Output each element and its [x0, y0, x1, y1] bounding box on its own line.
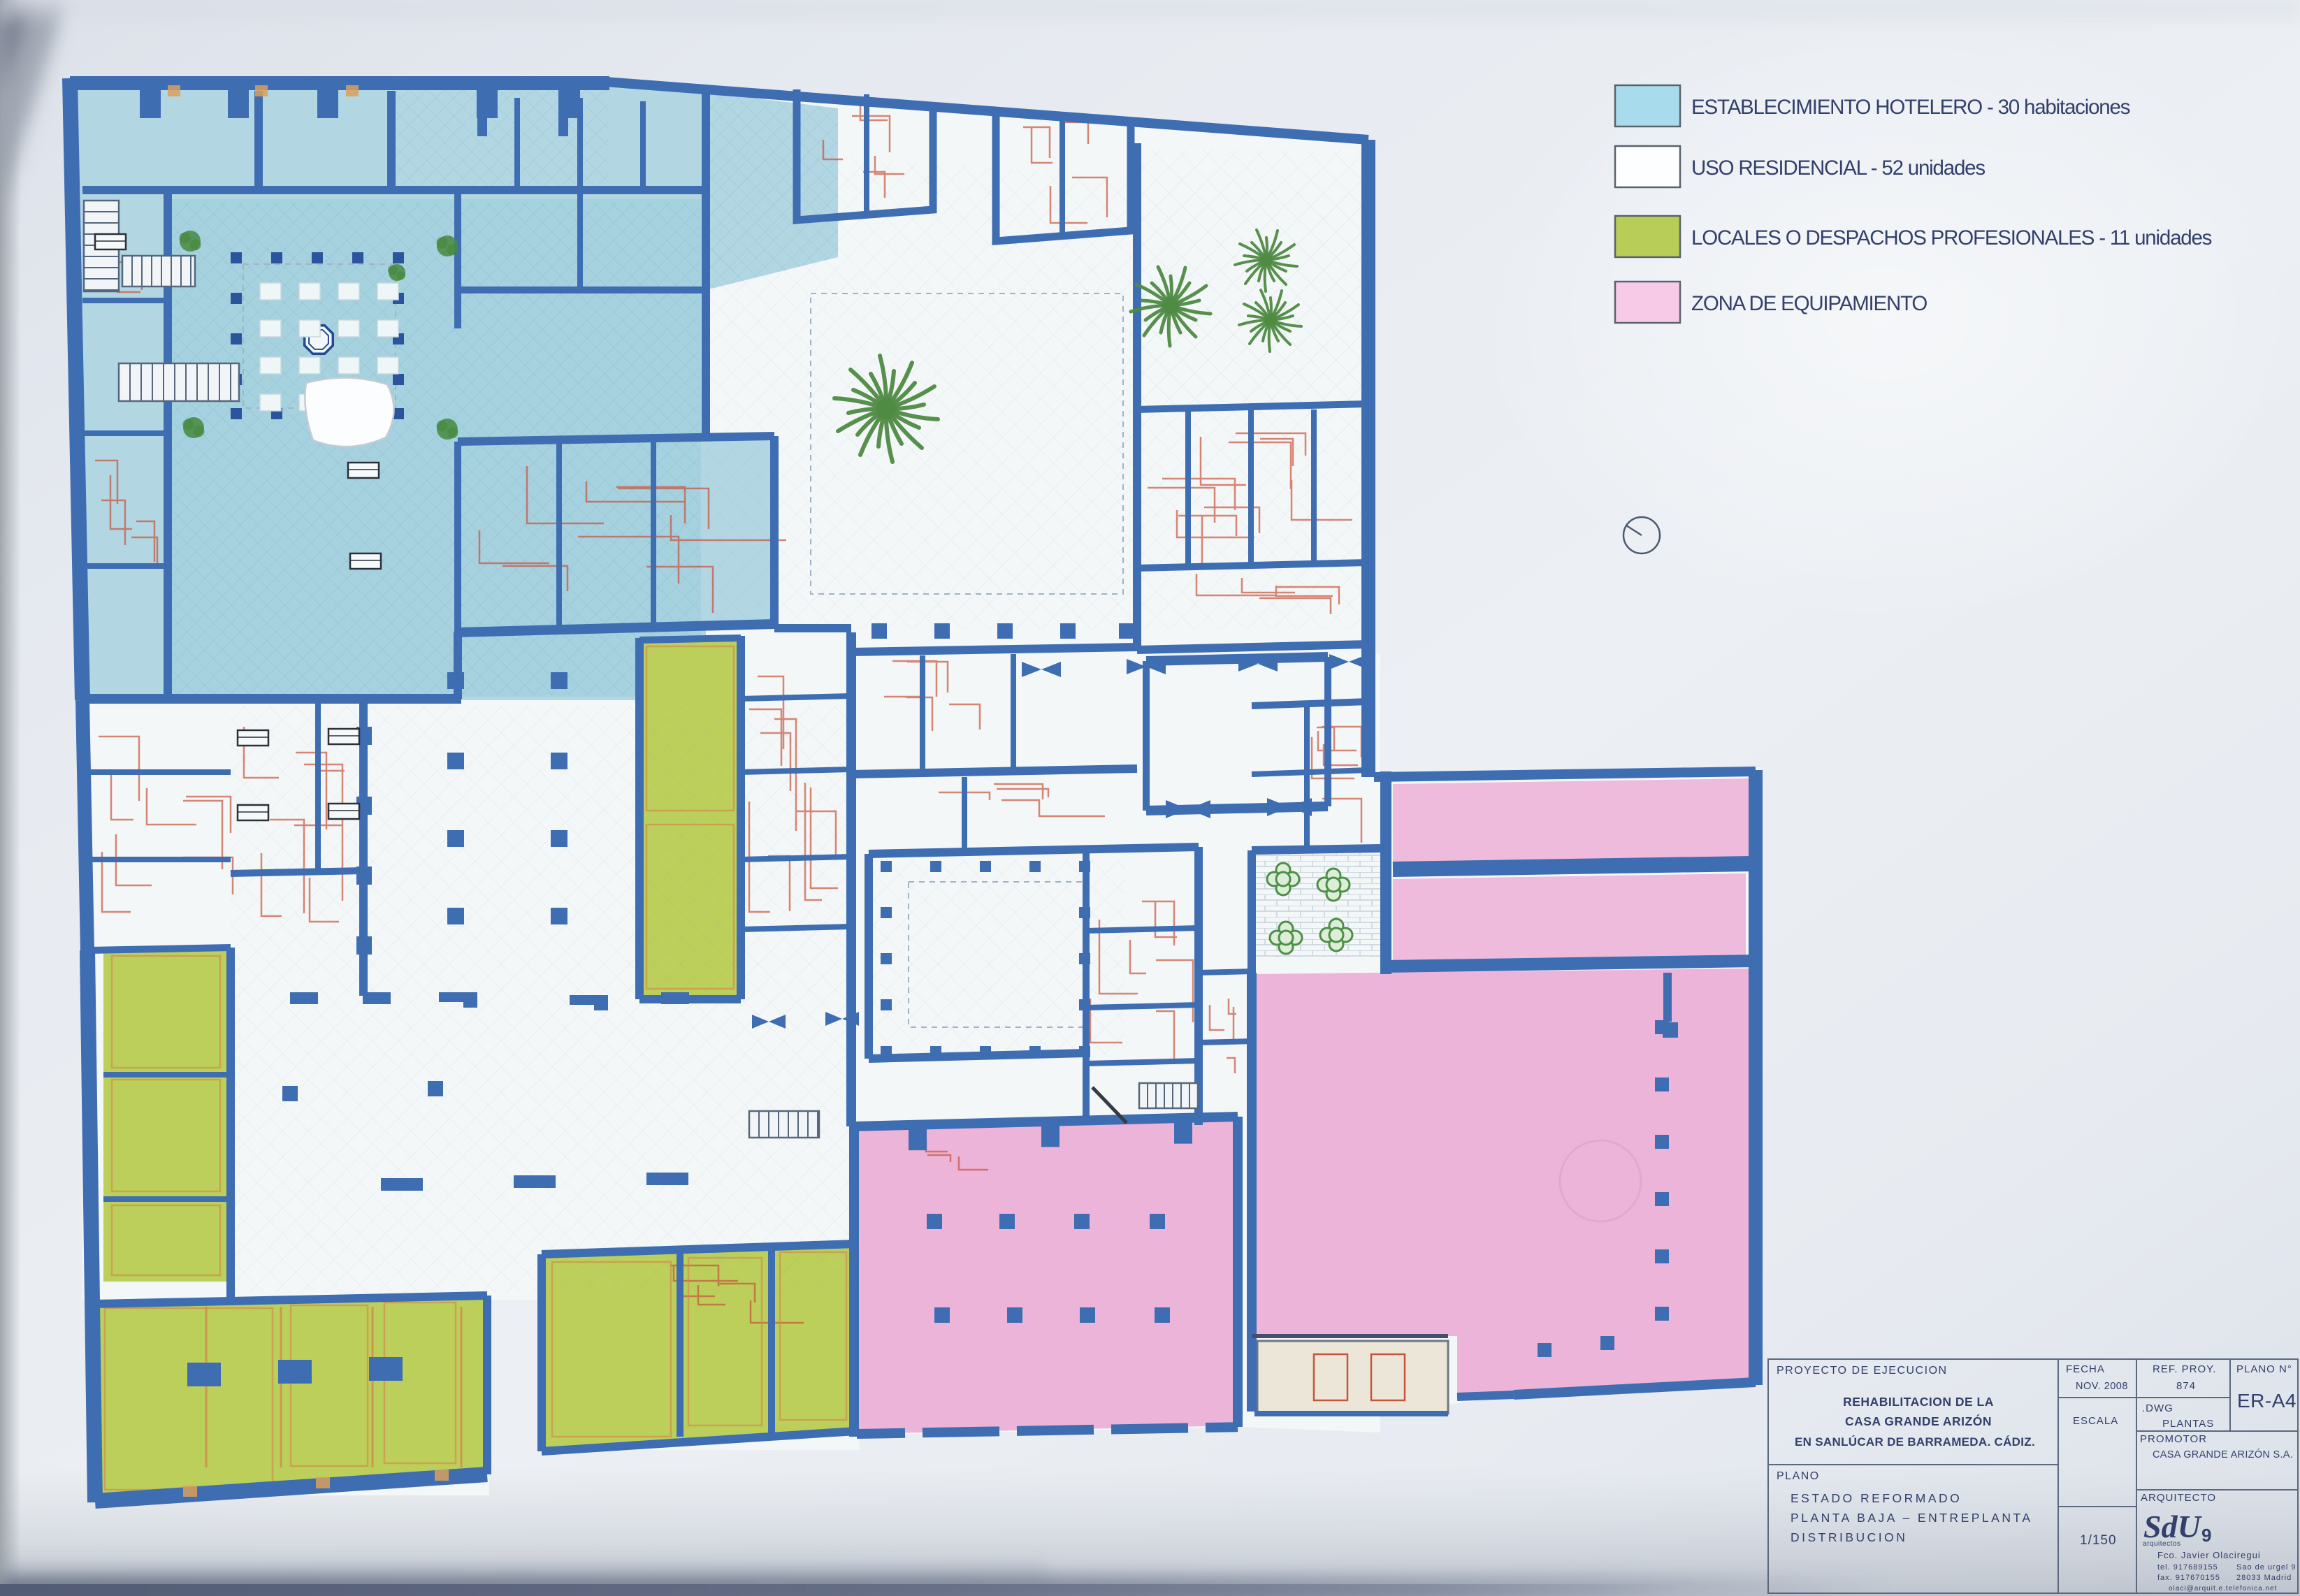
- svg-text:PLANTA BAJA – ENTREPLANTA: PLANTA BAJA – ENTREPLANTA: [1791, 1511, 2033, 1525]
- svg-text:tel. 917689155: tel. 917689155: [2157, 1563, 2218, 1572]
- svg-text:fax. 917670155: fax. 917670155: [2157, 1574, 2220, 1582]
- svg-text:NOV. 2008: NOV. 2008: [2076, 1381, 2128, 1392]
- svg-text:874: 874: [2176, 1380, 2196, 1392]
- svg-text:ESTABLECIMIENTO HOTELERO - 30: ESTABLECIMIENTO HOTELERO - 30 habitacion…: [1691, 96, 2130, 119]
- svg-text:1/150: 1/150: [2080, 1533, 2117, 1548]
- svg-text:USO RESIDENCIAL - 52 unidades: USO RESIDENCIAL - 52 unidades: [1691, 157, 1985, 180]
- svg-text:arquitectos: arquitectos: [2143, 1540, 2180, 1548]
- svg-text:9: 9: [2201, 1525, 2211, 1546]
- svg-text:olaci@arquit.e.telefonica.net: olaci@arquit.e.telefonica.net: [2169, 1585, 2277, 1593]
- svg-text:PROMOTOR: PROMOTOR: [2140, 1433, 2207, 1445]
- svg-text:PROYECTO DE EJECUCION: PROYECTO DE EJECUCION: [1777, 1365, 1948, 1377]
- svg-text:.DWG: .DWG: [2142, 1402, 2174, 1414]
- svg-text:DISTRIBUCION: DISTRIBUCION: [1791, 1530, 1907, 1544]
- svg-text:Sao de urgel 9: Sao de urgel 9: [2236, 1563, 2297, 1572]
- svg-text:FECHA: FECHA: [2066, 1363, 2105, 1375]
- svg-text:CASA GRANDE ARIZÓN: CASA GRANDE ARIZÓN: [1845, 1414, 1992, 1428]
- svg-text:ZONA DE EQUIPAMIENTO: ZONA DE EQUIPAMIENTO: [1691, 292, 1927, 315]
- svg-text:PLANTAS: PLANTAS: [2162, 1418, 2214, 1430]
- svg-text:REHABILITACION DE LA: REHABILITACION DE LA: [1843, 1395, 1994, 1409]
- svg-text:PLANO: PLANO: [1777, 1470, 1820, 1482]
- svg-text:CASA GRANDE ARIZÓN S.A.: CASA GRANDE ARIZÓN S.A.: [2153, 1449, 2293, 1460]
- svg-text:ARQUITECTO: ARQUITECTO: [2141, 1492, 2216, 1504]
- svg-text:LOCALES O DESPACHOS PROFESIONA: LOCALES O DESPACHOS PROFESIONALES - 11 u…: [1691, 226, 2212, 249]
- svg-text:28033 Madrid: 28033 Madrid: [2236, 1574, 2292, 1582]
- svg-text:ESTADO REFORMADO: ESTADO REFORMADO: [1791, 1491, 1962, 1505]
- svg-text:EN SANLÚCAR DE BARRAMEDA. CÁDI: EN SANLÚCAR DE BARRAMEDA. CÁDIZ.: [1795, 1435, 2035, 1449]
- svg-text:Fco. Javier Olaciregui: Fco. Javier Olaciregui: [2157, 1550, 2261, 1560]
- svg-text:REF. PROY.: REF. PROY.: [2153, 1363, 2216, 1375]
- svg-text:ER-A4: ER-A4: [2237, 1390, 2297, 1412]
- svg-text:SdU: SdU: [2143, 1509, 2203, 1544]
- svg-text:PLANO N°: PLANO N°: [2236, 1363, 2292, 1375]
- svg-text:ESCALA: ESCALA: [2073, 1415, 2118, 1427]
